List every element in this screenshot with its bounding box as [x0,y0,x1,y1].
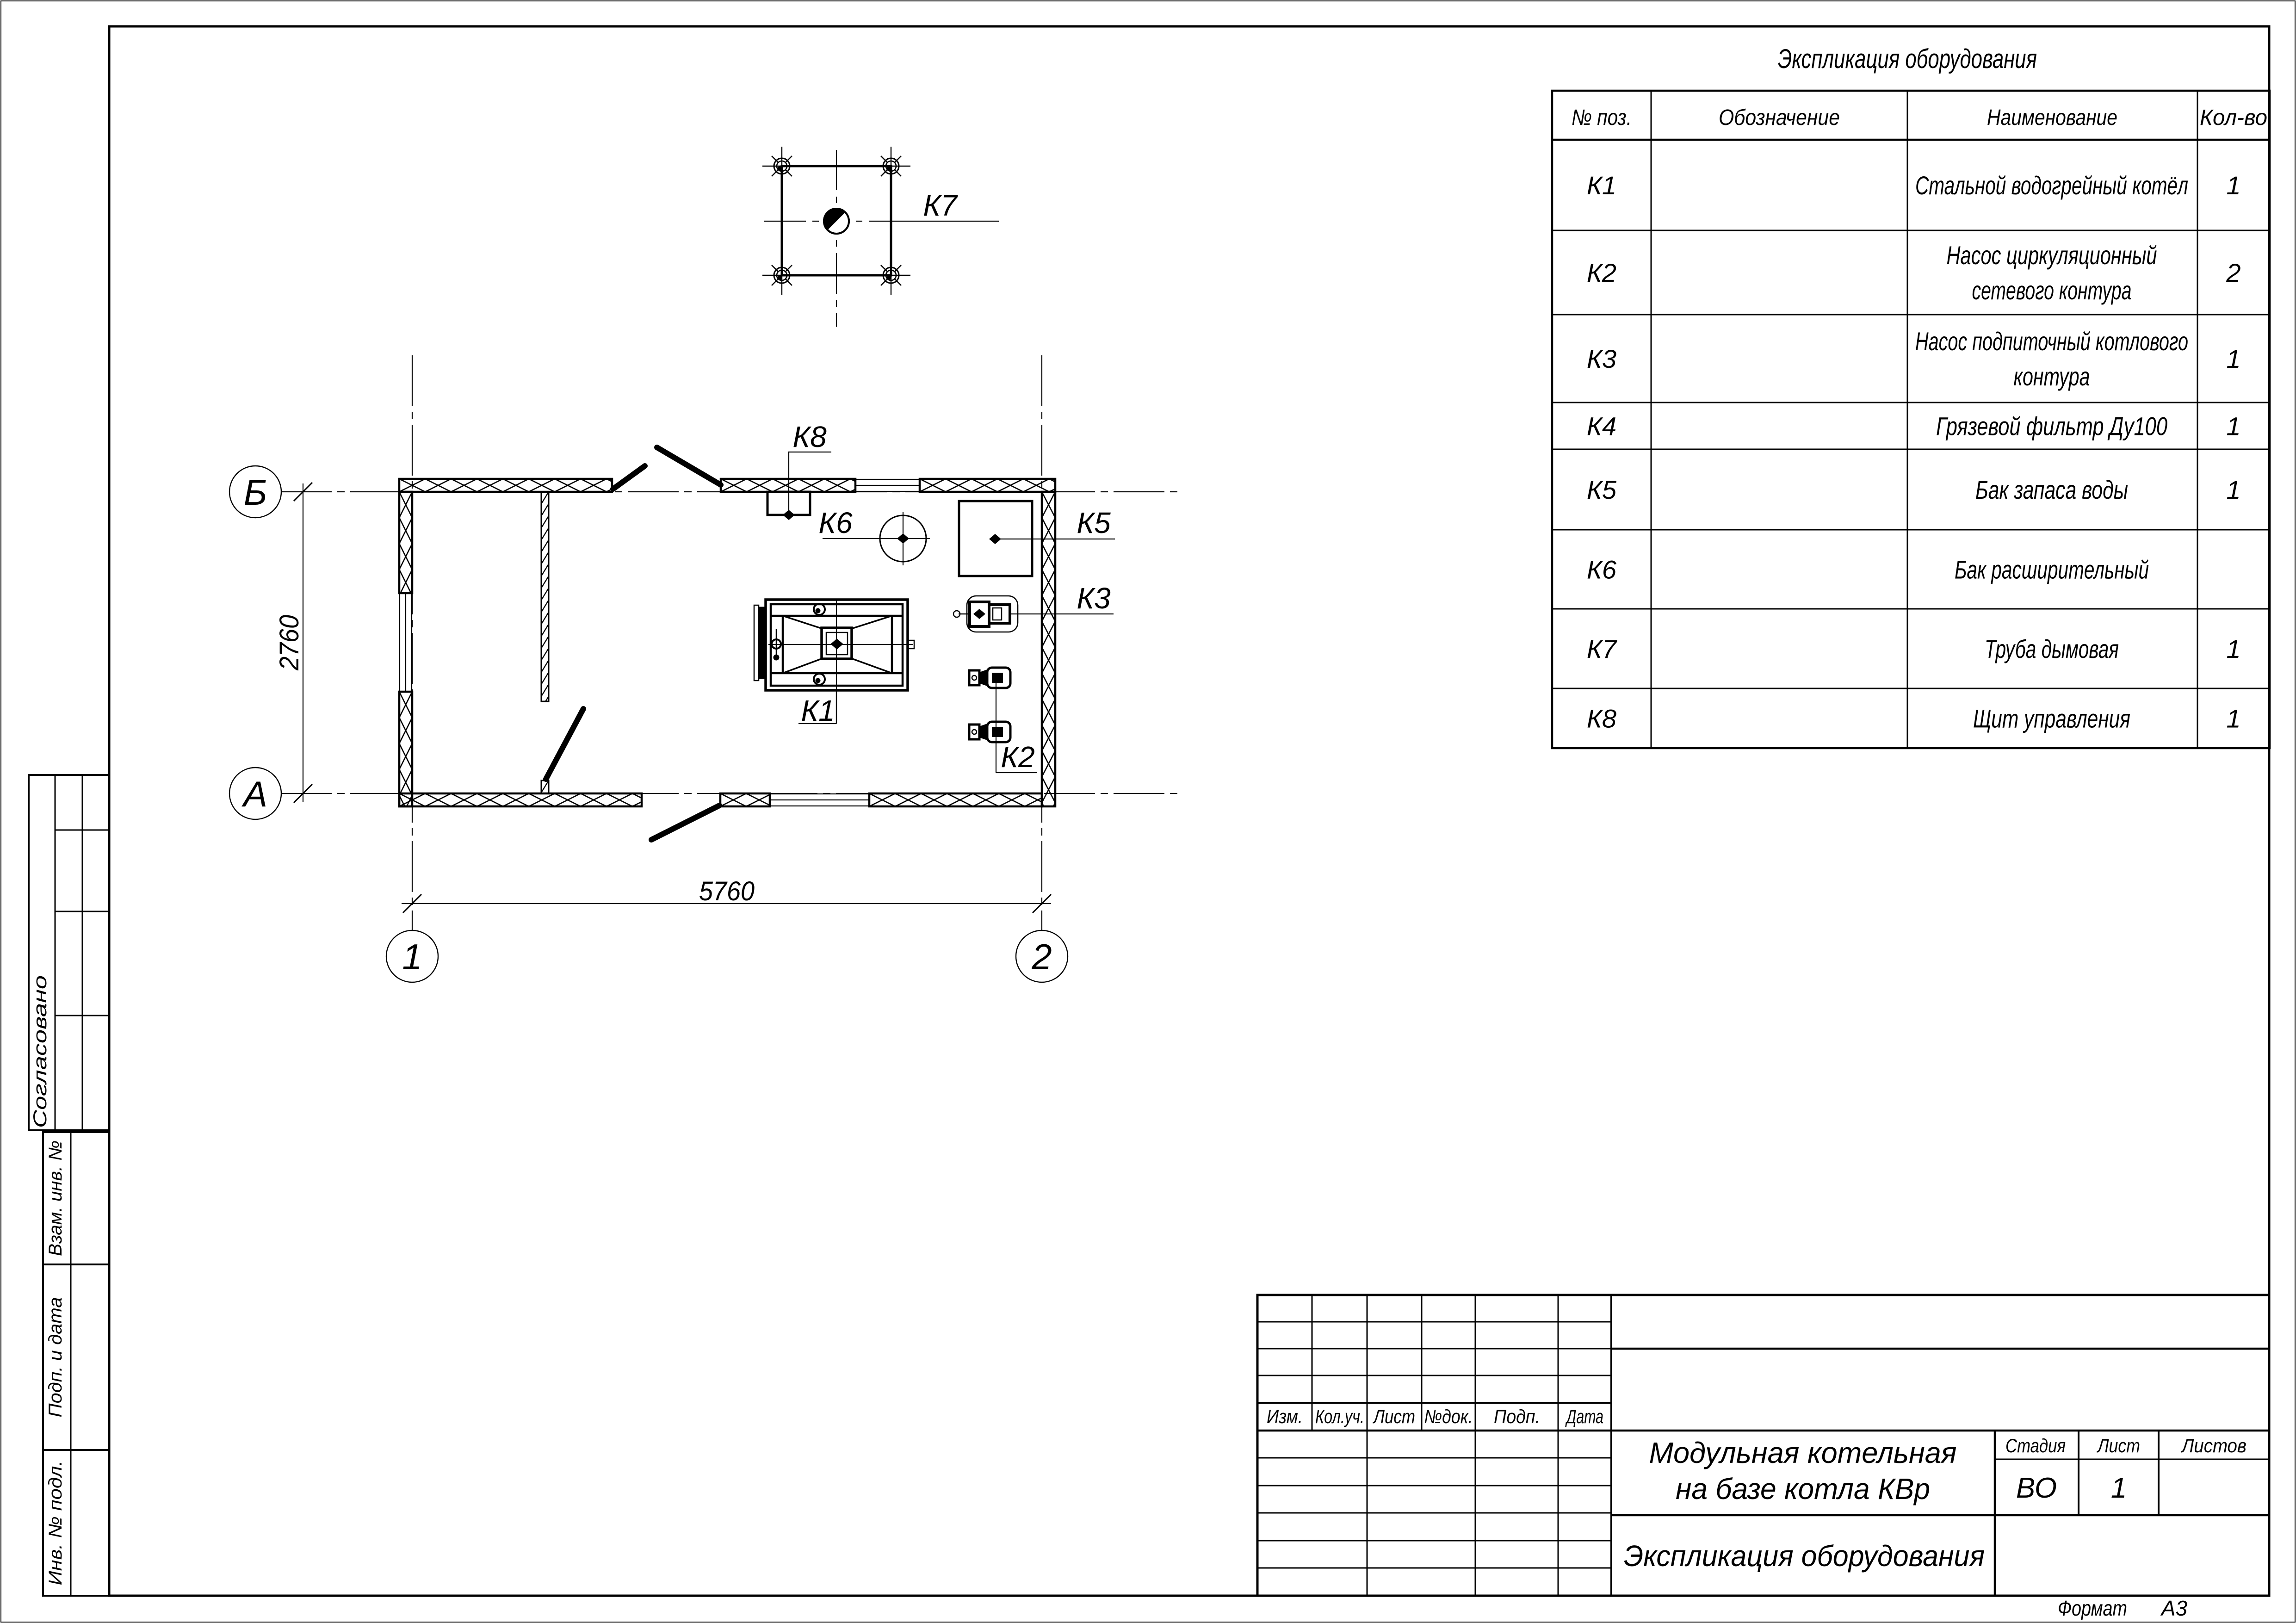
svg-text:К8: К8 [792,420,827,453]
svg-text:К1: К1 [1587,171,1616,200]
svg-text:Насос циркуляционный: Насос циркуляционный [1947,241,2157,270]
svg-text:К7: К7 [923,189,958,222]
svg-text:2760: 2760 [274,615,304,671]
svg-text:Листов: Листов [2180,1435,2246,1456]
svg-text:К3: К3 [1077,582,1111,615]
svg-text:Экспликация оборудования: Экспликация оборудования [1778,44,2037,74]
svg-text:Изм.: Изм. [1267,1406,1303,1427]
svg-text:Экспликация оборудования: Экспликация оборудования [1624,1539,1985,1573]
svg-text:К2: К2 [1587,258,1616,287]
svg-text:№док.: №док. [1424,1406,1473,1427]
svg-text:1: 1 [402,936,422,977]
svg-text:Инв. № подл.: Инв. № подл. [45,1461,66,1586]
svg-text:2: 2 [1031,936,1052,977]
svg-text:Б: Б [244,472,267,513]
svg-text:1: 1 [2226,171,2240,200]
svg-text:Грязевой фильтр Ду100: Грязевой фильтр Ду100 [1936,412,2167,441]
svg-text:Наименование: Наименование [1987,105,2117,130]
svg-text:1: 1 [2226,704,2240,733]
svg-text:К5: К5 [1587,475,1617,504]
svg-text:Подп. и дата: Подп. и дата [45,1297,66,1418]
svg-text:К6: К6 [1587,555,1617,584]
svg-text:Стадия: Стадия [2005,1435,2066,1456]
svg-text:Щит управления: Щит управления [1973,704,2130,733]
svg-text:сетевого контура: сетевого контура [1972,276,2132,305]
svg-text:К2: К2 [1001,740,1034,774]
svg-text:К3: К3 [1587,344,1616,373]
svg-text:Кол-во: Кол-во [2200,105,2267,130]
svg-text:5760: 5760 [699,876,755,906]
svg-text:Насос подпиточный котлового: Насос подпиточный котлового [1915,327,2188,356]
svg-text:Стальной водогрейный котёл: Стальной водогрейный котёл [1915,171,2188,200]
svg-text:К7: К7 [1587,634,1617,663]
svg-text:№ поз.: № поз. [1572,105,1632,130]
svg-text:К8: К8 [1587,704,1616,733]
svg-text:А: А [241,774,267,814]
svg-text:1: 1 [2226,475,2240,504]
svg-text:1: 1 [2226,344,2240,373]
svg-text:1: 1 [2226,412,2240,441]
svg-text:ВО: ВО [2016,1472,2057,1504]
svg-text:Модульная котельная: Модульная котельная [1649,1436,1957,1469]
svg-text:Труба дымовая: Труба дымовая [1985,634,2119,663]
svg-text:Кол.уч.: Кол.уч. [1315,1406,1364,1427]
svg-text:контура: контура [2014,362,2090,391]
svg-text:Бак запаса воды: Бак запаса воды [1975,475,2128,504]
svg-text:Лист: Лист [2096,1435,2140,1456]
svg-text:Лист: Лист [1373,1406,1415,1427]
svg-text:на базе котла КВр: на базе котла КВр [1676,1472,1930,1505]
svg-text:Обозначение: Обозначение [1719,105,1840,130]
svg-text:Бак расширительный: Бак расширительный [1955,555,2149,584]
svg-text:К6: К6 [818,506,853,539]
svg-text:Дата: Дата [1565,1406,1603,1427]
svg-text:К4: К4 [1587,412,1616,441]
svg-text:К1: К1 [801,694,835,727]
svg-text:1: 1 [2226,634,2240,663]
svg-text:Формат: Формат [2058,1596,2127,1620]
svg-text:А3: А3 [2160,1596,2188,1620]
svg-text:К5: К5 [1077,506,1111,539]
svg-text:Взам. инв. №: Взам. инв. № [45,1140,66,1256]
svg-text:Согласовано: Согласовано [30,975,50,1128]
svg-text:2: 2 [2226,258,2240,287]
svg-text:Подп.: Подп. [1494,1406,1540,1427]
svg-text:1: 1 [2111,1472,2127,1504]
